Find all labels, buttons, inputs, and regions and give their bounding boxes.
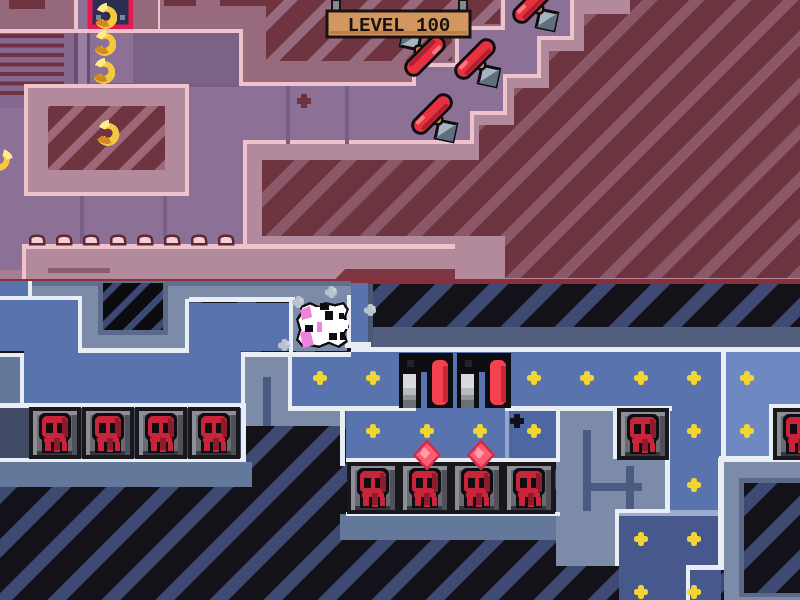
svg-text:LEVEL 100: LEVEL 100 xyxy=(348,15,451,37)
